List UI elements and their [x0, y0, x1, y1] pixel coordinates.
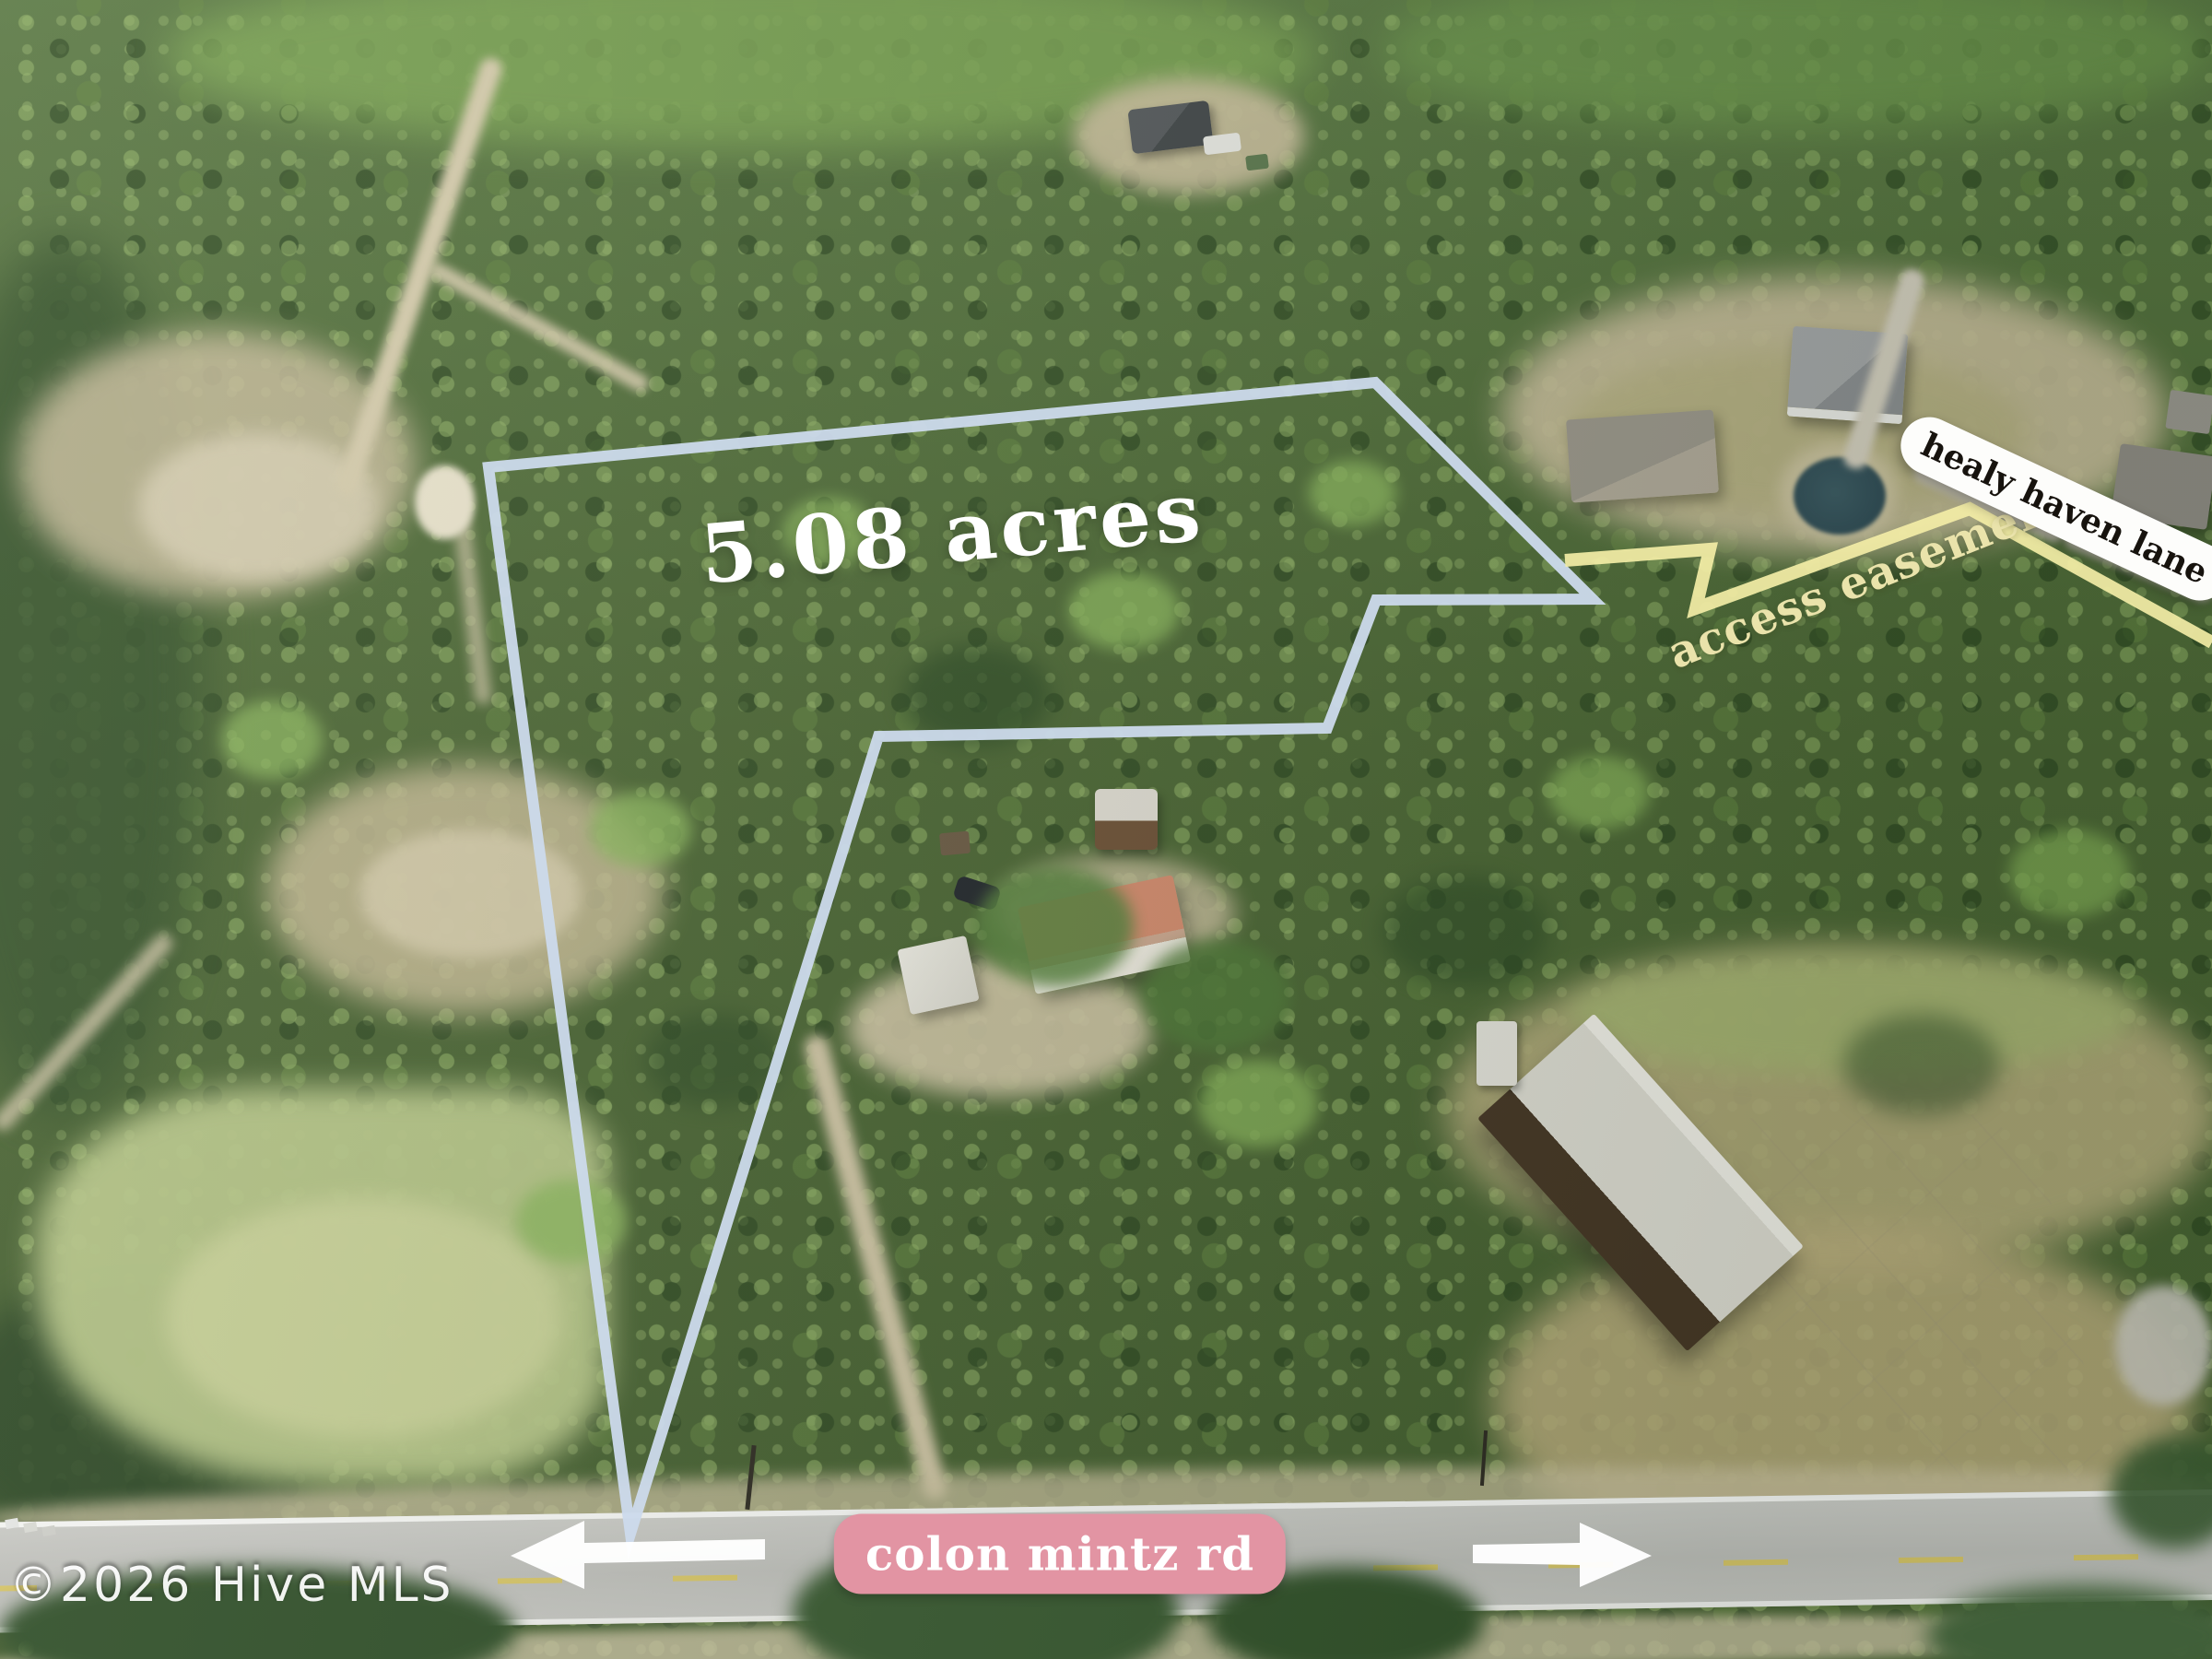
- road-label-colon-mintz-rd: colon mintz rd: [834, 1514, 1286, 1594]
- annotation-overlay: [0, 0, 2212, 1659]
- road-direction-arrow-right: [1473, 1523, 1652, 1587]
- aerial-listing-photo: 5.08 acres access easement healy haven l…: [0, 0, 2212, 1659]
- road-direction-arrow-left: [511, 1521, 765, 1589]
- mls-watermark: ©2026 Hive MLS: [9, 1558, 454, 1613]
